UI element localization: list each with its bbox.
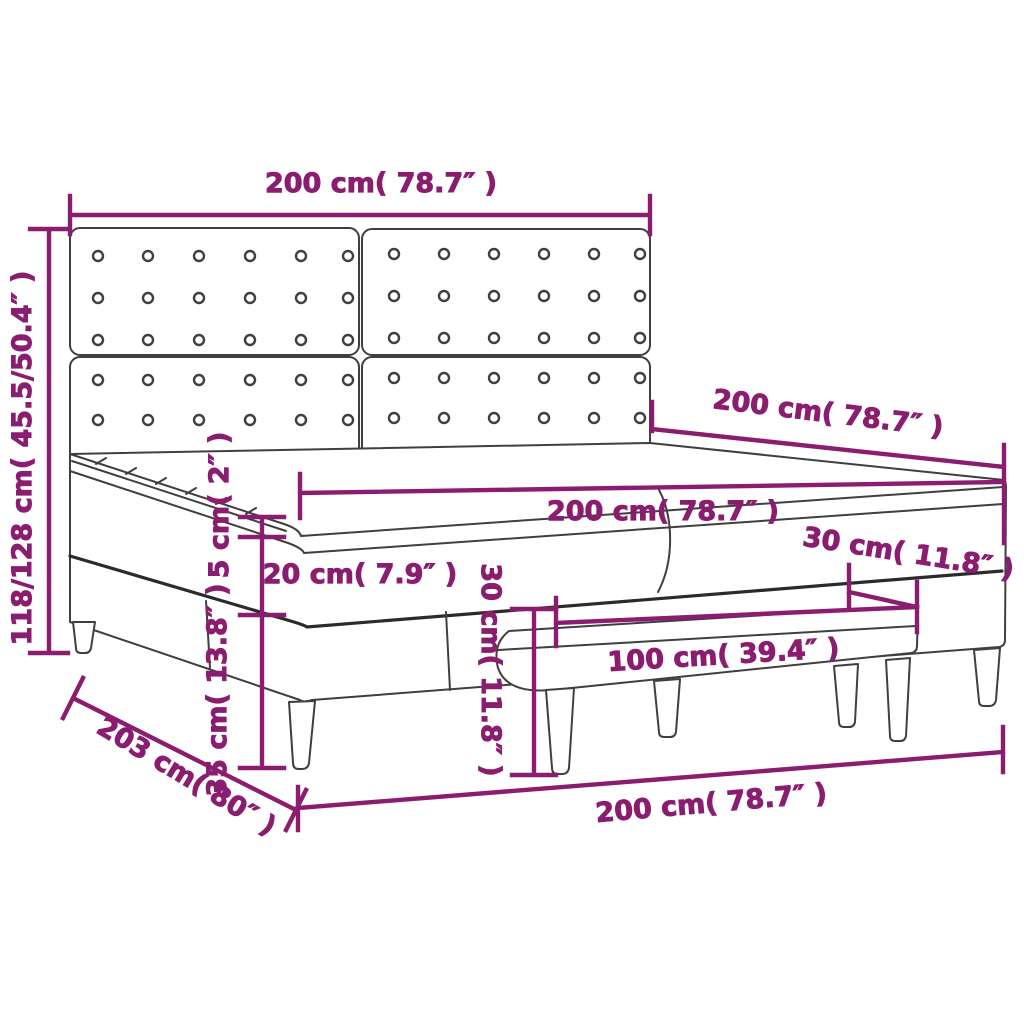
tufting-button <box>439 373 449 383</box>
tufting-button <box>194 415 204 425</box>
tufting-button <box>589 291 599 301</box>
tufting-button <box>343 415 353 425</box>
tufting-button <box>635 249 645 259</box>
tufting-button <box>539 291 549 301</box>
tufting-button <box>343 251 353 261</box>
bench-leg-back-right <box>834 664 858 727</box>
dim-label-bench-height: 30 cm( 11.8″ ) <box>475 563 506 776</box>
dim-label-bed-width-bottom: 200 cm( 78.7″ ) <box>594 778 828 829</box>
tufting-button <box>439 291 449 301</box>
tufting-button <box>245 251 255 261</box>
tufting-button <box>93 251 103 261</box>
tufting-button <box>589 373 599 383</box>
tufting-button <box>635 373 645 383</box>
tufting-button <box>245 335 255 345</box>
dim-label-mattress-thickness: 20 cm( 7.9″ ) <box>263 559 457 590</box>
tufting-button <box>93 375 103 385</box>
tufting-button <box>194 335 204 345</box>
tufting-button <box>635 291 645 301</box>
dimension-diagram: 200 cm( 78.7″ ) 118/128 cm( 45.5/50.4″ )… <box>0 0 1024 1024</box>
tufting-button <box>343 335 353 345</box>
tufting-button <box>389 373 399 383</box>
tufting-button <box>143 293 153 303</box>
tufting-button <box>245 375 255 385</box>
tufting-button <box>296 375 306 385</box>
dim-label-mattress-width: 200 cm( 78.7″ ) <box>547 496 779 527</box>
tufting-button <box>489 249 499 259</box>
dim-bed-width-bottom: 200 cm( 78.7″ ) <box>298 727 1003 830</box>
tufting-button <box>143 251 153 261</box>
tufting-button <box>296 415 306 425</box>
tufting-button <box>143 335 153 345</box>
tufting-button <box>343 375 353 385</box>
tufting-button <box>93 293 103 303</box>
tufting-button <box>589 249 599 259</box>
dim-label-bed-length-top: 200 cm( 78.7″ ) <box>711 384 945 443</box>
tufting-button <box>194 251 204 261</box>
tufting-button <box>489 413 499 423</box>
dim-label-bed-length-diagonal: 203 cm( 80″ ) <box>91 711 281 842</box>
tufting-button <box>143 415 153 425</box>
bed-diagram-canvas: 200 cm( 78.7″ ) 118/128 cm( 45.5/50.4″ )… <box>0 0 1024 1024</box>
tufting-button <box>245 293 255 303</box>
headboard-panel-top-right <box>362 229 650 355</box>
tufting-button <box>245 415 255 425</box>
tufting-button <box>439 413 449 423</box>
tufting-button <box>635 413 645 423</box>
dim-headboard-width: 200 cm( 78.7″ ) <box>70 168 650 234</box>
tufting-button <box>539 249 549 259</box>
tufting-button <box>389 413 399 423</box>
tufting-button <box>93 335 103 345</box>
tufting-button <box>439 333 449 343</box>
headboard <box>70 228 650 475</box>
bed-leg-right <box>974 648 1000 706</box>
bed-leg-front-left <box>289 701 315 769</box>
bench-leg-front-right <box>886 658 910 741</box>
tufting-button <box>489 291 499 301</box>
bench <box>496 606 918 774</box>
tufting-button <box>343 293 353 303</box>
tufting-button <box>194 375 204 385</box>
tufting-button <box>389 333 399 343</box>
tufting-button <box>589 333 599 343</box>
tufting-button <box>296 293 306 303</box>
tufting-button <box>93 415 103 425</box>
dim-label-total-height: 118/128 cm( 45.5/50.4″ ) <box>7 271 38 646</box>
tufting-button <box>389 291 399 301</box>
headboard-panel-top-left <box>70 228 359 355</box>
tufting-button <box>143 375 153 385</box>
tufting-button <box>489 333 499 343</box>
tufting-button <box>194 293 204 303</box>
tufting-button <box>539 333 549 343</box>
tufting-button <box>439 249 449 259</box>
tufting-button <box>296 335 306 345</box>
tufting-button <box>389 249 399 259</box>
tufting-button <box>489 373 499 383</box>
bench-leg-back-left <box>654 679 680 737</box>
dim-label-topper-thickness: 5 cm( 2″ ) <box>204 432 235 579</box>
dim-bed-length-diagonal: 203 cm( 80″ ) <box>63 678 306 842</box>
tufting-button <box>589 413 599 423</box>
dim-line-bed-length-diagonal <box>63 678 306 830</box>
bed-leg-far-left <box>73 622 95 653</box>
bench-leg-front-left <box>546 688 574 774</box>
tufting-button <box>296 251 306 261</box>
tufting-button <box>635 333 645 343</box>
dim-label-headboard-width: 200 cm( 78.7″ ) <box>265 168 497 199</box>
dim-total-height: 118/128 cm( 45.5/50.4″ ) <box>7 229 68 653</box>
tufting-button <box>539 373 549 383</box>
tufting-button <box>539 413 549 423</box>
